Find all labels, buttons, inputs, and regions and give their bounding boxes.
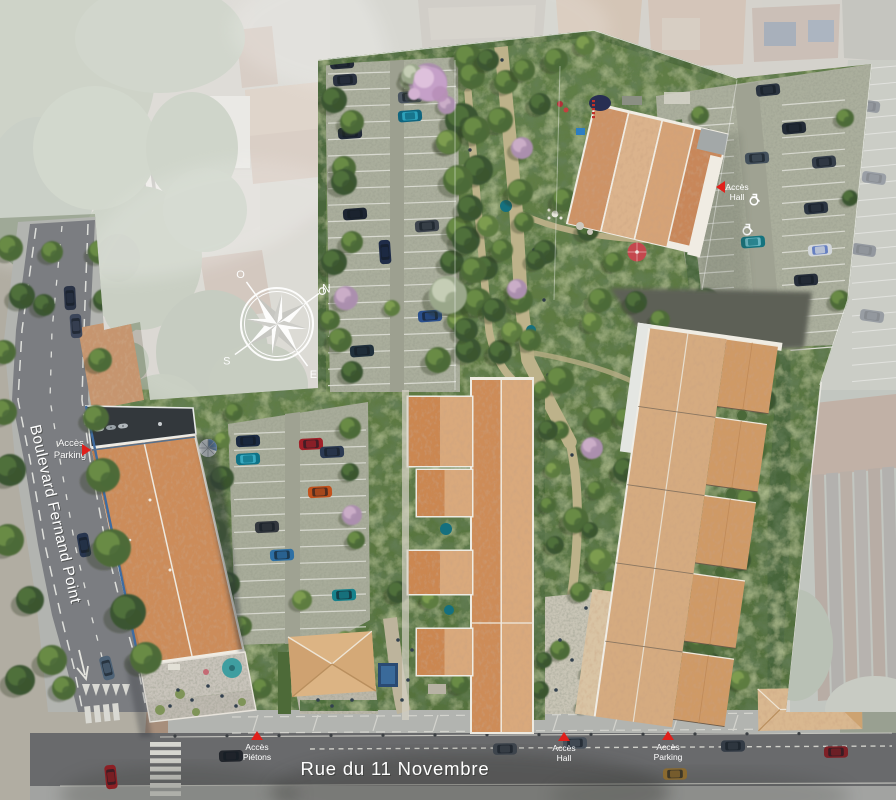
svg-text:Parking: Parking — [654, 752, 683, 762]
svg-text:N: N — [322, 282, 331, 296]
svg-text:S: S — [223, 355, 230, 367]
svg-text:Accès: Accès — [58, 438, 84, 449]
svg-text:Hall: Hall — [557, 753, 572, 763]
svg-text:Accès: Accès — [656, 742, 679, 752]
svg-text:Piétons: Piétons — [243, 752, 271, 762]
svg-text:E: E — [310, 369, 317, 381]
svg-text:Accès: Accès — [725, 182, 748, 192]
svg-text:Parking: Parking — [54, 450, 86, 461]
svg-text:O: O — [236, 269, 245, 281]
svg-text:Accès: Accès — [552, 743, 575, 753]
svg-text:Accès: Accès — [245, 742, 268, 752]
svg-text:Rue du 11 Novembre: Rue du 11 Novembre — [301, 758, 490, 779]
svg-text:Hall: Hall — [730, 192, 745, 202]
